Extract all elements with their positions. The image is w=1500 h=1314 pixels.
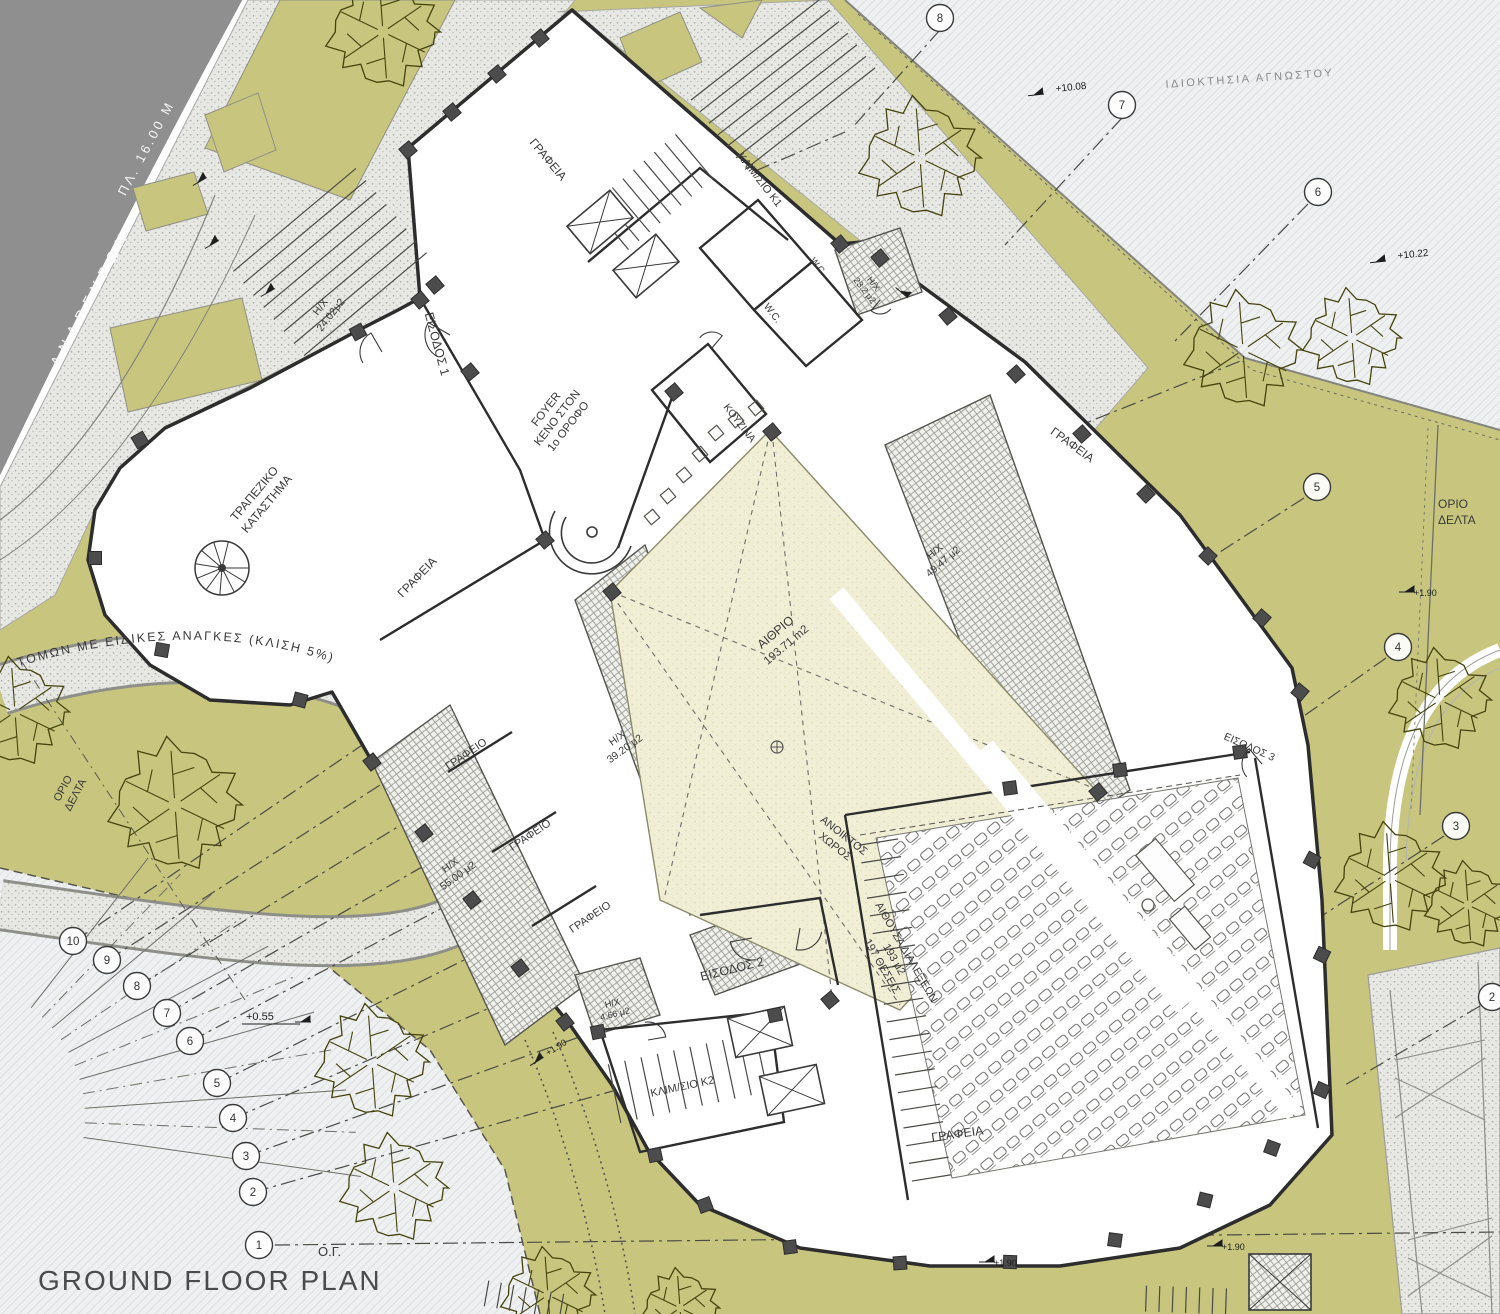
column — [590, 1024, 605, 1039]
column — [1113, 763, 1128, 778]
column — [1003, 781, 1018, 796]
grid-bubble-grid_left-8: 2 — [240, 1179, 267, 1206]
level-190-a: +1.90 — [994, 1258, 1017, 1268]
ground-floor-plan-drawing: 109876543218765432 ΑΝΑΡΓΥΡΩΝ ΠΛ. 16.00 Μ… — [0, 0, 1500, 1314]
column — [154, 642, 169, 657]
level-055: +0.55 — [246, 1011, 274, 1023]
grid-bubble-grid_right-5: 3 — [1443, 813, 1470, 840]
column — [647, 1147, 662, 1162]
level-190-d: +1.90 — [1222, 1242, 1245, 1252]
grid-number: 6 — [1315, 187, 1321, 199]
grid-number: 8 — [937, 13, 943, 25]
grid-bubble-grid_left-1: 9 — [94, 947, 121, 974]
column — [1108, 1233, 1123, 1248]
grid-number: 7 — [164, 1008, 170, 1020]
column — [767, 1007, 782, 1022]
grid-bubble-grid_right-2: 6 — [1305, 179, 1332, 206]
grid-number: 6 — [187, 1036, 193, 1048]
grid-number: 10 — [67, 936, 80, 948]
boundary-right-line1: ΟΡΙΟ — [1438, 497, 1468, 511]
grid-number: 8 — [134, 981, 140, 993]
grid-number: 4 — [1395, 642, 1402, 654]
column — [292, 692, 308, 708]
grid-bubble-grid_left-6: 4 — [220, 1105, 247, 1132]
grid-number: 4 — [230, 1113, 237, 1125]
grid-bubble-grid_right-0: 8 — [927, 5, 954, 32]
grid-bubble-grid_left-3: 7 — [154, 1000, 181, 1027]
floor-plan-canvas: 109876543218765432 ΑΝΑΡΓΥΡΩΝ ΠΛ. 16.00 Μ… — [0, 0, 1500, 1314]
grid-number: 5 — [214, 1078, 220, 1090]
grid-number: 3 — [1453, 821, 1459, 833]
grid-number: 5 — [1314, 482, 1320, 494]
elevator-shaft — [1249, 1254, 1311, 1310]
grid-number: 3 — [243, 1151, 249, 1163]
grid-number: 1 — [256, 1240, 262, 1252]
grid-number: 7 — [1119, 100, 1125, 112]
spiral-stair — [195, 541, 249, 595]
level-190-b: +1.90 — [1414, 588, 1437, 598]
grid-bubble-grid_left-9: 1 — [246, 1232, 273, 1259]
column — [783, 1240, 798, 1255]
grid-number: 2 — [250, 1187, 256, 1199]
boundary-right-line2: ΔΕΛΤΑ — [1438, 513, 1476, 527]
grid-bubble-grid_left-5: 5 — [204, 1070, 231, 1097]
column — [89, 552, 102, 565]
grid-bubble-grid_right-4: 4 — [1385, 634, 1412, 661]
grid-bubble-grid_left-4: 6 — [177, 1028, 204, 1055]
grid-number: 9 — [104, 955, 110, 967]
building-line-label: Ο.Γ. — [318, 1244, 341, 1259]
column — [893, 1256, 907, 1270]
grid-bubble-grid_left-0: 10 — [60, 928, 87, 955]
plan-title: GROUND FLOOR PLAN — [38, 1265, 382, 1296]
grid-bubble-grid_right-1: 7 — [1109, 92, 1136, 119]
grid-number: 2 — [1489, 992, 1495, 1004]
column — [1197, 1192, 1213, 1208]
grid-bubble-grid_right-3: 5 — [1304, 474, 1331, 501]
grid-bubble-grid_left-7: 3 — [233, 1143, 260, 1170]
grid-bubble-grid_left-2: 8 — [124, 973, 151, 1000]
grid-bubble-grid_right-6: 2 — [1479, 984, 1500, 1011]
